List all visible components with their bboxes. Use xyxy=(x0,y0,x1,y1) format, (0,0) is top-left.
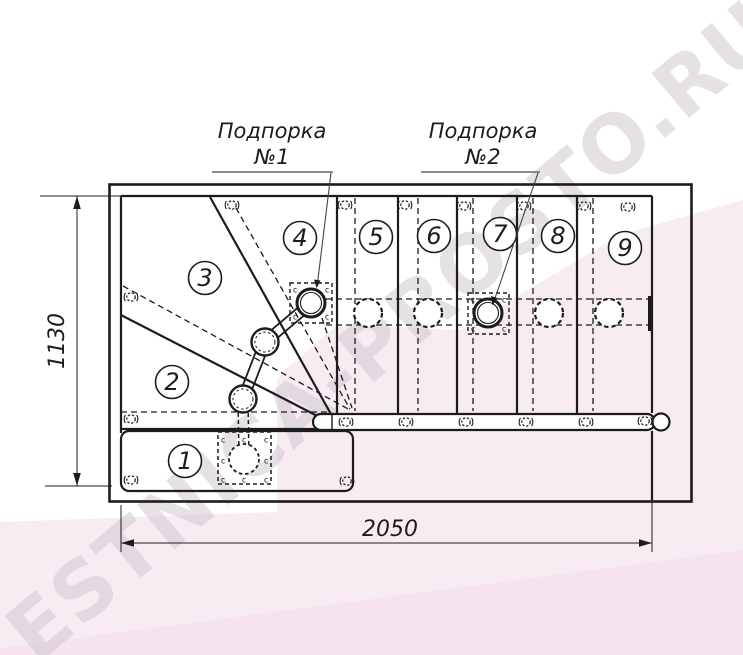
step-number-5: 5 xyxy=(368,223,383,251)
staircase-drawing-page: LESTNICA-PROSTO.RU xyxy=(0,0,743,655)
screw-mark: c xyxy=(325,286,329,295)
staircase-plan-svg: LESTNICA-PROSTO.RU xyxy=(0,0,743,655)
step-number-9: 9 xyxy=(617,234,632,262)
step-number-2: 2 xyxy=(164,368,179,396)
screw-mark: c xyxy=(325,313,329,322)
straight-handrail xyxy=(313,414,670,431)
step-number-1: 1 xyxy=(177,447,192,475)
screw-mark: c xyxy=(293,286,297,295)
screw-mark: c xyxy=(502,296,506,305)
support1-label-line2: №1 xyxy=(253,145,289,169)
baluster-circle xyxy=(535,299,563,327)
screw-mark: c xyxy=(242,436,246,445)
screw-mark: c xyxy=(221,436,225,445)
screw-mark: c xyxy=(242,476,246,485)
baluster-circle xyxy=(595,299,623,327)
support2-post-circle xyxy=(474,299,502,327)
screw-mark: c xyxy=(264,436,268,445)
handrail-bar xyxy=(313,414,655,430)
screw-mark: c xyxy=(502,325,506,334)
newel-post xyxy=(252,329,279,356)
baluster-circle xyxy=(414,299,442,327)
support-post-2: c c c c xyxy=(468,293,509,334)
screw-mark: c xyxy=(221,476,225,485)
screw-mark: c xyxy=(471,296,475,305)
width-dim-text: 2050 xyxy=(362,517,418,542)
bottom-newel-circle xyxy=(229,444,259,474)
step-number-6: 6 xyxy=(426,222,441,250)
support1-label-line1: Подпорка xyxy=(218,119,327,143)
support1-callout: Подпорка №1 xyxy=(212,119,333,288)
height-arrow-top xyxy=(73,196,81,209)
support1-leader-line xyxy=(317,173,331,287)
support1-post-circle xyxy=(297,289,325,317)
screw-mark: c xyxy=(221,457,225,466)
handrail-end-cap xyxy=(653,414,670,431)
support2-label-line1: Подпорка xyxy=(429,119,538,143)
screw-mark: c xyxy=(471,325,475,334)
screw-mark: c xyxy=(264,457,268,466)
newel-post xyxy=(230,386,257,413)
step-number-4: 4 xyxy=(292,224,307,252)
screw-mark: c xyxy=(264,476,268,485)
screw-mark: c xyxy=(293,313,297,322)
step-number-8: 8 xyxy=(550,222,565,250)
height-dim-text: 1130 xyxy=(45,313,70,369)
support2-label-line2: №2 xyxy=(464,145,500,169)
baluster-circle xyxy=(354,299,382,327)
step-number-7: 7 xyxy=(492,220,508,248)
support-post-1: c c c c xyxy=(290,283,332,323)
step-number-3: 3 xyxy=(197,264,212,292)
height-arrow-bottom xyxy=(73,473,81,486)
